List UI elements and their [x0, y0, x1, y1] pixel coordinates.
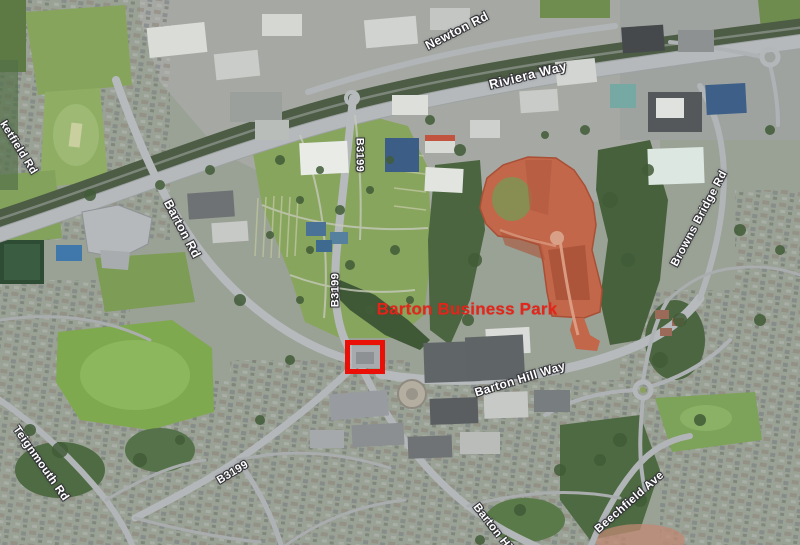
- satellite-basemap: [0, 0, 800, 545]
- business-park-label: Barton Business Park: [377, 301, 558, 318]
- site-highlight-rectangle: [345, 340, 385, 374]
- aerial-map: ketfield Rd Newton Rd Riviera Way B3199 …: [0, 0, 800, 545]
